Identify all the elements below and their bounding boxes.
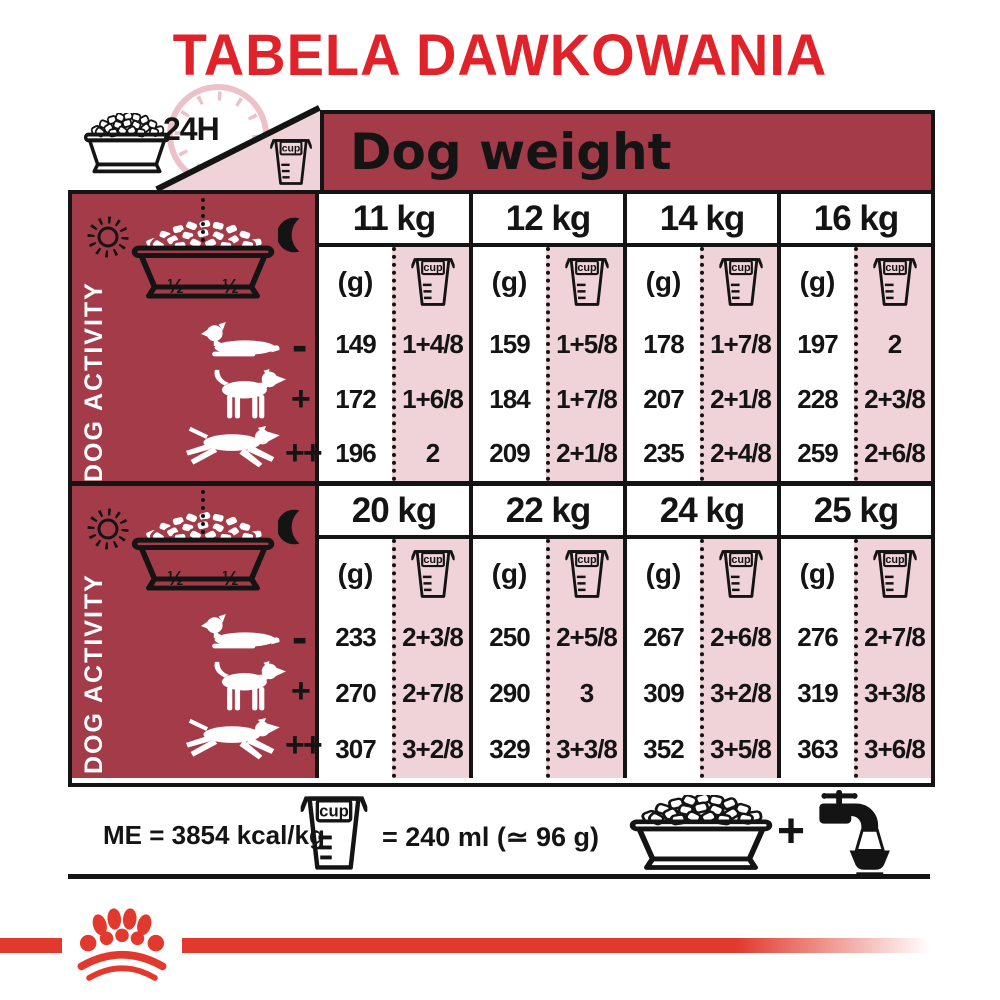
cups-value-medium: 2+7/8	[396, 665, 469, 721]
cups-subcolumn: 2+6/8 3+2/8 3+5/8	[700, 539, 777, 778]
cups-value-medium: 2+1/8	[704, 372, 777, 427]
bowl-half-label: ½	[167, 276, 184, 299]
weight-header: 12 kg	[473, 194, 623, 247]
bowl-half-label: ½	[222, 568, 239, 591]
cup-subheader	[550, 539, 623, 609]
weight-column-body: (g) 197 228 259 2 2+3/8 2+6/8	[781, 247, 931, 481]
weight-column-body: (g) 267 309 352 2+6/8 3+2/8 3+5/8	[627, 539, 777, 778]
energy-value: ME = 3854 kcal/kg	[103, 820, 325, 851]
grams-value-low: 267	[627, 609, 700, 665]
cups-subcolumn: 2+3/8 2+7/8 3+2/8	[392, 539, 469, 778]
measuring-cup-icon	[270, 137, 312, 187]
header-band: 24H Dog weight	[68, 85, 935, 190]
cups-value-high: 3+6/8	[858, 722, 931, 778]
measuring-cup-icon	[411, 548, 455, 600]
resting-dog-icon	[194, 322, 288, 362]
dog-weight-label: Dog weight	[324, 123, 672, 181]
grams-value-medium: 228	[781, 372, 854, 427]
activity-medium-marker: +	[291, 382, 311, 416]
grams-unit-label: (g)	[781, 539, 854, 609]
activity-sidebar: ½ ½ DOG ACTIVITY - + ++	[72, 194, 319, 481]
grams-subcolumn: (g) 178 207 235	[627, 247, 700, 481]
cups-value-medium: 2+3/8	[858, 372, 931, 427]
grams-value-medium: 172	[319, 372, 392, 427]
activity-medium-marker: +	[291, 674, 311, 708]
dog-activity-label: DOG ACTIVITY	[80, 574, 109, 774]
grams-unit-label: (g)	[319, 247, 392, 317]
cups-subcolumn: 1+4/8 1+6/8 2	[392, 247, 469, 481]
cups-value-medium: 1+7/8	[550, 372, 623, 427]
cup-subheader	[704, 539, 777, 609]
cups-subcolumn: 1+7/8 2+1/8 2+4/8	[700, 247, 777, 481]
cup-subheader	[704, 247, 777, 317]
grams-unit-label: (g)	[473, 539, 546, 609]
weight-label: 12 kg	[506, 199, 591, 239]
weight-column: 25 kg (g) 276 319 363 2+7/8 3+3/8 3+6/8	[781, 486, 931, 778]
cups-value-low: 2	[858, 317, 931, 372]
columns: 11 kg (g) 149 172 196 1+4/8 1+6/8 2 12 k…	[319, 194, 931, 481]
table-sections: ½ ½ DOG ACTIVITY - + ++ 11 kg (g) 149 17…	[72, 194, 931, 778]
weight-column: 11 kg (g) 149 172 196 1+4/8 1+6/8 2	[319, 194, 473, 481]
weight-column-body: (g) 159 184 209 1+5/8 1+7/8 2+1/8	[473, 247, 623, 481]
water-tap-icon	[816, 786, 900, 878]
weight-column: 22 kg (g) 250 290 329 2+5/8 3 3+3/8	[473, 486, 627, 778]
cups-value-low: 2+5/8	[550, 609, 623, 665]
cups-value-high: 2+4/8	[704, 426, 777, 481]
grams-subcolumn: (g) 250 290 329	[473, 539, 546, 778]
weight-column: 12 kg (g) 159 184 209 1+5/8 1+7/8 2+1/8	[473, 194, 627, 481]
grams-value-medium: 207	[627, 372, 700, 427]
grams-value-low: 197	[781, 317, 854, 372]
bowl-half-label: ½	[167, 568, 184, 591]
grams-value-medium: 184	[473, 372, 546, 427]
footer-divider	[68, 874, 930, 879]
weight-label: 25 kg	[814, 491, 899, 531]
grams-value-low: 276	[781, 609, 854, 665]
weight-column: 24 kg (g) 267 309 352 2+6/8 3+2/8 3+5/8	[627, 486, 781, 778]
clock-24h-label: 24H	[163, 111, 219, 148]
dosage-table: ½ ½ DOG ACTIVITY - + ++ 11 kg (g) 149 17…	[68, 190, 935, 787]
weight-label: 24 kg	[660, 491, 745, 531]
weight-column-body: (g) 250 290 329 2+5/8 3 3+3/8	[473, 539, 623, 778]
cups-value-low: 1+4/8	[396, 317, 469, 372]
grams-unit-label: (g)	[473, 247, 546, 317]
cup-subheader	[858, 247, 931, 317]
cups-value-high: 2+6/8	[858, 426, 931, 481]
sun-icon	[86, 214, 130, 260]
cups-subcolumn: 2 2+3/8 2+6/8	[854, 247, 931, 481]
grams-subcolumn: (g) 233 270 307	[319, 539, 392, 778]
grams-value-low: 159	[473, 317, 546, 372]
crown-paw-logo-icon	[64, 908, 180, 986]
kibble-bowl-icon	[625, 795, 777, 877]
cups-value-medium: 3+3/8	[858, 665, 931, 721]
grams-unit-label: (g)	[627, 247, 700, 317]
dog-weight-header: Dog weight	[320, 110, 935, 190]
grams-subcolumn: (g) 159 184 209	[473, 247, 546, 481]
bowl-split-dotted-line	[201, 490, 205, 534]
moon-icon	[278, 508, 306, 546]
grams-value-medium: 270	[319, 665, 392, 721]
grams-value-medium: 319	[781, 665, 854, 721]
grams-value-high: 363	[781, 722, 854, 778]
running-dog-icon	[176, 426, 288, 472]
grams-value-high: 307	[319, 722, 392, 778]
cup-subheader	[396, 247, 469, 317]
measuring-cup-icon	[297, 793, 371, 873]
measuring-cup-icon	[565, 548, 609, 600]
activity-sidebar: ½ ½ DOG ACTIVITY - + ++	[72, 486, 319, 778]
weight-column: 14 kg (g) 178 207 235 1+7/8 2+1/8 2+4/8	[627, 194, 781, 481]
standing-dog-icon	[208, 658, 286, 716]
grams-subcolumn: (g) 267 309 352	[627, 539, 700, 778]
grams-value-high: 329	[473, 722, 546, 778]
weight-label: 20 kg	[352, 491, 437, 531]
measuring-cup-icon	[719, 256, 763, 308]
cups-value-low: 1+7/8	[704, 317, 777, 372]
cups-subcolumn: 2+5/8 3 3+3/8	[546, 539, 623, 778]
weight-header: 25 kg	[781, 486, 931, 539]
columns: 20 kg (g) 233 270 307 2+3/8 2+7/8 3+2/8 …	[319, 486, 931, 778]
weight-header: 20 kg	[319, 486, 469, 539]
cups-value-high: 2	[396, 426, 469, 481]
grams-unit-label: (g)	[781, 247, 854, 317]
cups-value-high: 3+2/8	[396, 722, 469, 778]
grams-value-high: 209	[473, 426, 546, 481]
bowl-split-dotted-line	[201, 198, 205, 242]
measuring-cup-icon	[411, 256, 455, 308]
running-dog-icon	[176, 718, 288, 764]
cups-value-high: 3+3/8	[550, 722, 623, 778]
measuring-cup-icon	[565, 256, 609, 308]
weight-header: 24 kg	[627, 486, 777, 539]
standing-dog-icon	[208, 366, 286, 424]
grams-value-high: 196	[319, 426, 392, 481]
logo-bar-left	[0, 938, 62, 953]
weight-label: 22 kg	[506, 491, 591, 531]
cups-value-high: 3+5/8	[704, 722, 777, 778]
weight-header: 14 kg	[627, 194, 777, 247]
bowl-half-label: ½	[222, 276, 239, 299]
grams-value-low: 178	[627, 317, 700, 372]
moon-icon	[278, 216, 306, 254]
weight-column: 20 kg (g) 233 270 307 2+3/8 2+7/8 3+2/8	[319, 486, 473, 778]
kibble-bowl-icon	[81, 113, 173, 179]
cup-subheader	[550, 247, 623, 317]
weight-column: 16 kg (g) 197 228 259 2 2+3/8 2+6/8	[781, 194, 931, 481]
weight-header: 16 kg	[781, 194, 931, 247]
table-section: ½ ½ DOG ACTIVITY - + ++ 11 kg (g) 149 17…	[72, 194, 931, 486]
measuring-cup-icon	[719, 548, 763, 600]
cups-subcolumn: 1+5/8 1+7/8 2+1/8	[546, 247, 623, 481]
cup-subheader	[396, 539, 469, 609]
dosage-table-page: TABELA DAWKOWANIA 24H Dog weight ½ ½ DOG…	[0, 0, 1000, 1000]
cups-value-medium: 1+6/8	[396, 372, 469, 427]
weight-header: 22 kg	[473, 486, 623, 539]
grams-subcolumn: (g) 149 172 196	[319, 247, 392, 481]
grams-value-high: 352	[627, 722, 700, 778]
cups-value-high: 2+1/8	[550, 426, 623, 481]
logo-bar-right	[182, 938, 930, 953]
cups-value-low: 1+5/8	[550, 317, 623, 372]
measuring-cup-icon	[873, 548, 917, 600]
page-title: TABELA DAWKOWANIA	[0, 20, 1000, 88]
weight-label: 16 kg	[814, 199, 899, 239]
cup-subheader	[858, 539, 931, 609]
grams-value-low: 149	[319, 317, 392, 372]
cup-equivalence: = 240 ml (≃ 96 g)	[382, 822, 599, 853]
activity-low-marker: -	[292, 614, 307, 660]
grams-unit-label: (g)	[627, 539, 700, 609]
activity-low-marker: -	[292, 322, 307, 368]
cups-value-low: 2+6/8	[704, 609, 777, 665]
dog-activity-label: DOG ACTIVITY	[80, 282, 109, 482]
grams-value-high: 259	[781, 426, 854, 481]
weight-header: 11 kg	[319, 194, 469, 247]
measuring-cup-icon	[873, 256, 917, 308]
cups-value-low: 2+3/8	[396, 609, 469, 665]
weight-column-body: (g) 178 207 235 1+7/8 2+1/8 2+4/8	[627, 247, 777, 481]
grams-subcolumn: (g) 276 319 363	[781, 539, 854, 778]
cups-value-low: 2+7/8	[858, 609, 931, 665]
cups-value-medium: 3	[550, 665, 623, 721]
weight-column-body: (g) 149 172 196 1+4/8 1+6/8 2	[319, 247, 469, 481]
weight-label: 14 kg	[660, 199, 745, 239]
grams-value-medium: 309	[627, 665, 700, 721]
sun-icon	[86, 506, 130, 552]
grams-subcolumn: (g) 197 228 259	[781, 247, 854, 481]
grams-value-high: 235	[627, 426, 700, 481]
cups-value-medium: 3+2/8	[704, 665, 777, 721]
table-section: ½ ½ DOG ACTIVITY - + ++ 20 kg (g) 233 27…	[72, 486, 931, 778]
cups-subcolumn: 2+7/8 3+3/8 3+6/8	[854, 539, 931, 778]
plus-sign: +	[777, 804, 805, 859]
weight-column-body: (g) 233 270 307 2+3/8 2+7/8 3+2/8	[319, 539, 469, 778]
weight-column-body: (g) 276 319 363 2+7/8 3+3/8 3+6/8	[781, 539, 931, 778]
grams-value-medium: 290	[473, 665, 546, 721]
grams-unit-label: (g)	[319, 539, 392, 609]
weight-label: 11 kg	[353, 199, 436, 239]
resting-dog-icon	[194, 614, 288, 654]
activity-high-marker: ++	[285, 436, 321, 470]
activity-high-marker: ++	[285, 728, 321, 762]
grams-value-low: 250	[473, 609, 546, 665]
grams-value-low: 233	[319, 609, 392, 665]
